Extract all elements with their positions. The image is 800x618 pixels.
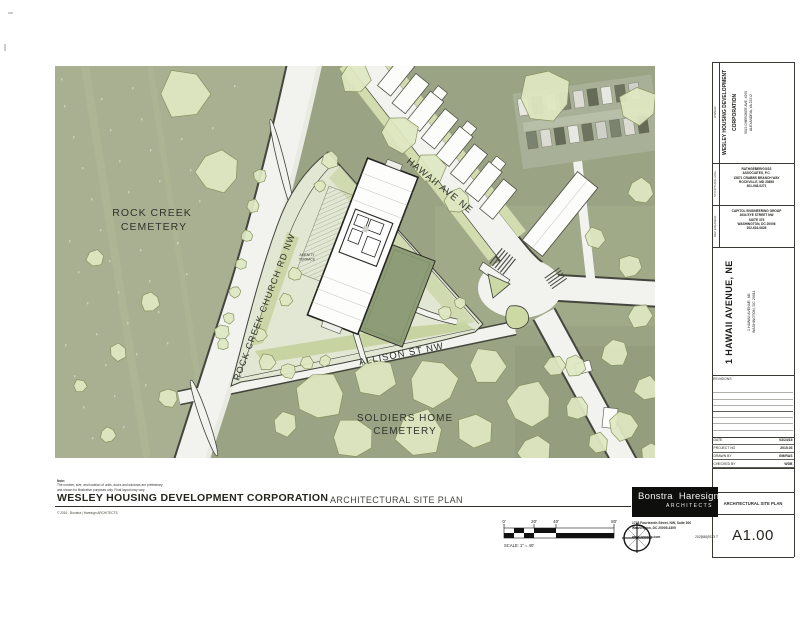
titleblock-border: [712, 492, 794, 493]
owner-address: ALEXANDRIA, VA 22312: [749, 64, 754, 161]
grave-dot: [118, 291, 119, 293]
grave-dot: [128, 191, 129, 193]
grave-dot: [149, 280, 150, 282]
project-name: 1 HAWAII AVENUE, NE: [724, 249, 742, 375]
note-block: Note: The number, size, and location of …: [57, 479, 163, 492]
car-icon: [600, 86, 612, 104]
car-icon: [540, 129, 552, 147]
grave-dot: [177, 242, 178, 244]
grave-dot: [159, 180, 160, 182]
tree-icon: [334, 420, 372, 456]
field-value: 2015.03: [780, 446, 792, 450]
grave-dot: [109, 260, 110, 262]
sheet-title: ARCHITECTURAL SITE PLAN: [712, 501, 794, 506]
rock-creek-cemetery-label: CEMETERY: [121, 221, 187, 233]
firm-name-left: Bonstra: [638, 491, 673, 502]
sheet-number: A1.00: [712, 527, 794, 544]
grave-dot: [186, 273, 187, 275]
structural-strip-label: STRUCTURAL ENG.: [713, 165, 719, 203]
grave-dot: [73, 136, 74, 138]
mep-strip-label: MEP ENGINEER: [713, 207, 719, 245]
project-title: WESLEY HOUSING DEVELOPMENT CORPORATION: [57, 492, 328, 504]
grave-dot: [145, 384, 146, 386]
car-icon: [554, 127, 566, 145]
field-value: GM/RAS: [779, 454, 793, 458]
field-label: CHECKED BY: [714, 462, 736, 466]
grave-dot: [190, 169, 191, 171]
grave-dot: [65, 344, 66, 346]
title-underline: [55, 506, 631, 507]
scale-bar-blocks: [504, 528, 614, 538]
site-plan-drawing: ROCK CREEK CEMETERY ROCK CREEK CHURCH RD…: [55, 66, 655, 458]
firm-name: Bonstra Haresign: [638, 491, 713, 502]
grave-dot: [101, 98, 102, 100]
firm-logo-block: Bonstra Haresign ARCHITECTS: [632, 487, 718, 517]
copyright: © 2016 - Bonstra | Haresign ARCHITECTS: [57, 511, 118, 515]
north-compass-icon: [620, 521, 654, 555]
grave-dot: [64, 105, 65, 107]
scanned-drawing-sheet: { "sheet": { "note_title": "Note:", "not…: [0, 0, 800, 618]
titleblock-border: [712, 205, 794, 206]
revisions-lines: [713, 387, 793, 435]
soldiers-home-cemetery-label: SOLDIERS HOME: [357, 413, 453, 424]
scale-tick-label: 80': [611, 519, 617, 524]
titleblock-border: [712, 514, 794, 515]
grave-dot: [87, 302, 88, 304]
grave-dot: [74, 375, 75, 377]
scale-label: SCALE: 1" = 40': [504, 543, 534, 548]
scan-mark: [8, 12, 13, 14]
grave-dot: [234, 85, 235, 87]
titleblock-border: [712, 375, 794, 376]
titleblock-border: [712, 163, 794, 164]
grave-dot: [83, 406, 84, 408]
field-row: CHECKED BYWDB: [712, 460, 794, 468]
tree-icon: [567, 397, 588, 419]
grave-dot: [158, 311, 159, 313]
project-address: WASHINGTON, DC 20011: [752, 249, 757, 375]
grave-dot: [96, 333, 97, 335]
grave-dot: [141, 118, 142, 120]
field-label: DATE: [714, 438, 723, 442]
rock-creek-cemetery-label: ROCK CREEK: [112, 207, 191, 219]
grave-dot: [91, 198, 92, 200]
car-icon: [568, 125, 580, 143]
field-row: DATE03/24/16: [712, 437, 794, 445]
scale-bar: 0' 20' 40' 80' SCALE: 1" = 40': [498, 516, 630, 552]
field-row: DRAWN BYGM/RAS: [712, 453, 794, 461]
grave-dot: [100, 229, 101, 231]
car-icon: [595, 121, 607, 139]
grave-dot: [167, 342, 168, 344]
soldiers-home-cemetery-label: CEMETERY: [373, 426, 436, 437]
titleblock-border: [794, 62, 795, 557]
scale-tick-label: 20': [531, 519, 537, 524]
mep-engineer-block: CAPITOL ENGINEERING GROUP 1634 EYE STREE…: [719, 209, 794, 231]
tree-icon: [218, 339, 228, 350]
structural-engineer-block: RATHGEBER/GOSS ASSOCIATES, P.C. 15871 CR…: [719, 167, 794, 189]
owner-strip-label: OWNER: [713, 64, 719, 161]
scale-tick-label: 40': [553, 519, 559, 524]
titleblock-border: [712, 468, 794, 469]
car-icon: [526, 131, 538, 149]
grave-dot: [123, 426, 124, 428]
field-value: WDB: [784, 462, 792, 466]
grave-dot: [132, 87, 133, 89]
field-value: 03/24/16: [779, 438, 792, 442]
grave-dot: [114, 395, 115, 397]
field-label: DRAWN BY: [714, 454, 732, 458]
sheet-fields: DATE03/24/16PROJECT NO2015.03DRAWN BYGM/…: [712, 437, 794, 468]
grave-dot: [127, 322, 128, 324]
grave-dot: [61, 78, 62, 80]
owner-name: WESLEY HOUSING DEVELOPMENT: [722, 64, 731, 161]
scan-mark: [4, 44, 6, 51]
firm-name-right: Haresign: [679, 491, 719, 502]
revisions-label: REVISIONS: [713, 377, 731, 381]
tree-icon: [235, 259, 246, 270]
grave-dot: [150, 149, 151, 151]
grave-dot: [69, 240, 70, 242]
car-icon: [609, 119, 621, 137]
car-icon: [573, 90, 585, 108]
titleblock-border: [712, 557, 794, 558]
grave-dot: [212, 127, 213, 129]
car-icon: [587, 88, 599, 106]
amenity-terrace-label: TERRACE: [299, 258, 316, 262]
grave-dot: [199, 200, 200, 202]
amenity-terrace-label: AMENITY: [299, 253, 315, 257]
field-label: PROJECT NO: [714, 446, 736, 450]
titleblock-border: [712, 62, 794, 63]
owner-name: CORPORATION: [732, 64, 741, 161]
car-icon: [581, 123, 593, 141]
grave-dot: [110, 129, 111, 131]
grave-dot: [140, 249, 141, 251]
drawing-title: ARCHITECTURAL SITE PLAN: [330, 495, 463, 505]
firm-phone: 202|588|9373 T: [695, 535, 718, 540]
grave-dot: [92, 437, 93, 439]
grave-dot: [136, 353, 137, 355]
grave-dot: [82, 167, 83, 169]
titleblock-border: [712, 247, 794, 248]
grave-dot: [119, 160, 120, 162]
grave-dot: [105, 364, 106, 366]
grave-dot: [78, 271, 79, 273]
traffic-island: [506, 306, 529, 329]
scale-tick-label: 0': [502, 519, 506, 524]
grave-dot: [181, 138, 182, 140]
firm-subtitle: ARCHITECTS: [638, 503, 713, 509]
field-row: PROJECT NO2015.03: [712, 445, 794, 453]
